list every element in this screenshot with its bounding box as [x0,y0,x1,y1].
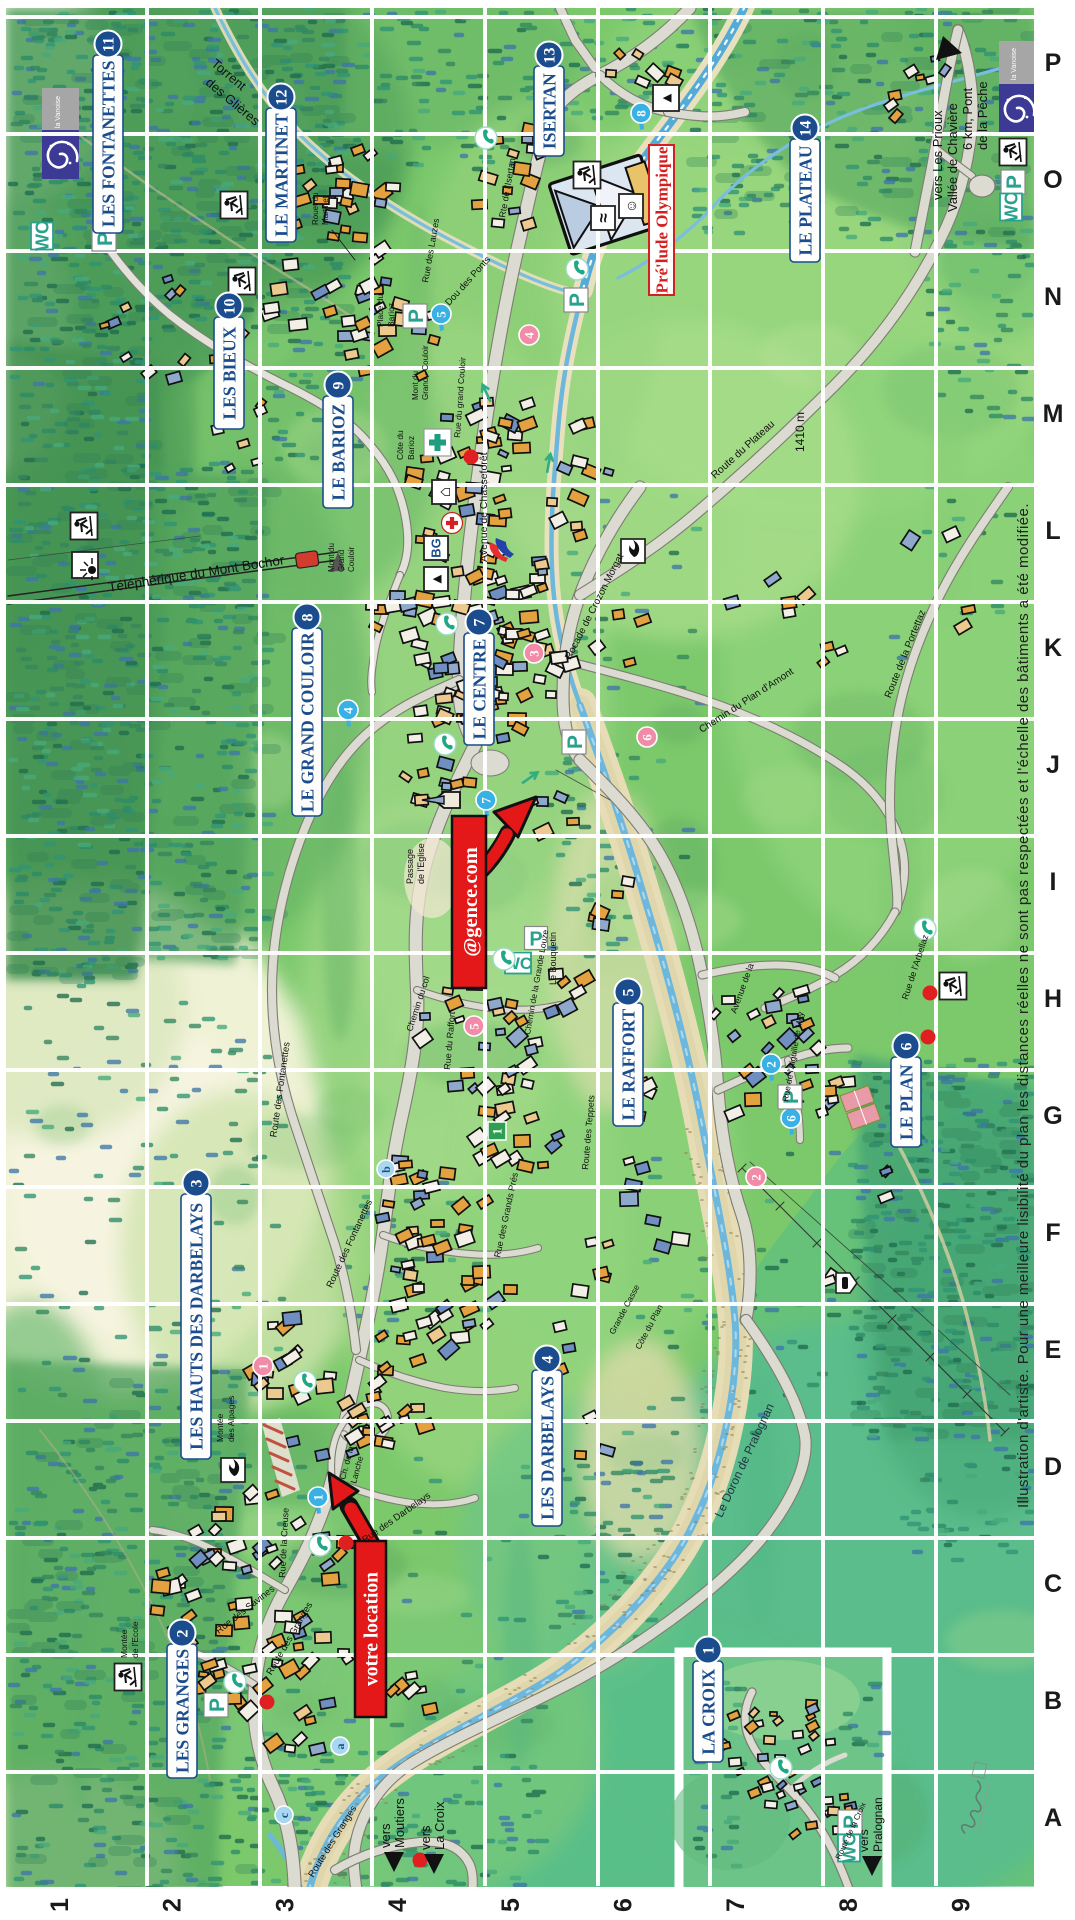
svg-text:P: P [405,309,428,323]
svg-text:7: 7 [472,619,489,627]
svg-text:Barioz: Barioz [406,436,416,460]
svg-text:3: 3 [271,1898,299,1912]
svg-text:C: C [1044,1570,1062,1598]
svg-text:LES BIEUX: LES BIEUX [219,326,239,419]
svg-text:LE PLATEAU: LE PLATEAU [795,145,815,255]
svg-text:LE GRAND COULOIR: LE GRAND COULOIR [297,632,317,812]
svg-text:1410 m: 1410 m [793,412,807,452]
svg-text:L: L [1045,517,1060,545]
svg-text:LE RAFFORT: LE RAFFORT [618,1008,638,1120]
svg-text:vers: vers [418,1825,433,1850]
svg-text:2: 2 [749,1174,764,1181]
svg-text:O: O [1043,166,1062,194]
svg-text:P: P [1045,49,1062,77]
svg-text:N: N [1044,283,1062,311]
svg-text:8: 8 [835,1898,863,1912]
svg-text:5: 5 [621,989,638,997]
svg-text:Mont du: Mont du [327,543,336,572]
svg-text:5: 5 [467,1023,482,1030]
svg-text:Pralognan: Pralognan [871,1797,885,1852]
svg-text:▲: ▲ [428,572,445,587]
svg-text:ISERTAN: ISERTAN [539,73,559,149]
svg-text:5: 5 [434,311,449,318]
svg-text:vers Les Prioux: vers Les Prioux [930,110,945,200]
svg-text:5: 5 [497,1898,525,1912]
svg-text:4: 4 [522,332,537,339]
svg-text:Le Bouquetin: Le Bouquetin [548,932,558,985]
svg-text:▲: ▲ [658,91,675,106]
svg-text:LA CROIX: LA CROIX [698,1668,718,1754]
svg-text:Mont du: Mont du [411,371,420,400]
svg-text:11: 11 [101,37,118,52]
svg-text:9: 9 [331,382,348,390]
svg-text:la Vanoise: la Vanoise [1011,48,1018,80]
svg-text:vers: vers [378,1823,393,1848]
svg-text:1: 1 [490,1128,505,1135]
svg-text:LES HAUTS DES DARBELAYS: LES HAUTS DES DARBELAYS [186,1203,206,1450]
svg-text:Vallée de Chavière: Vallée de Chavière [945,103,960,212]
svg-text:2: 2 [175,1630,192,1638]
svg-text:3: 3 [189,1180,206,1188]
svg-text:1: 1 [46,1898,74,1912]
svg-text:Grand - Couloir: Grand - Couloir [421,345,430,400]
svg-text:a: a [333,1744,347,1750]
svg-text:LE PLAN: LE PLAN [896,1064,916,1140]
svg-text:vers: vers [857,1829,871,1852]
svg-text:4: 4 [384,1898,412,1912]
svg-text:14: 14 [798,121,815,137]
svg-text:8: 8 [300,614,317,622]
svg-text:2: 2 [159,1898,187,1912]
svg-text:6: 6 [640,734,655,741]
svg-text:1: 1 [701,1647,718,1655]
svg-text:votre location: votre location [361,1572,382,1686]
svg-text:c: c [277,1812,291,1818]
svg-text:Passage: Passage [405,849,415,884]
svg-text:M: M [1043,400,1064,428]
svg-text:A: A [1044,1804,1062,1832]
svg-text:10: 10 [222,299,239,315]
svg-text:LES FONTANETTES: LES FONTANETTES [98,61,118,227]
svg-text:LE CENTRE: LE CENTRE [469,639,489,740]
svg-text:J: J [1046,751,1060,779]
svg-text:Rouet du: Rouet du [311,193,320,225]
svg-text:G: G [1043,1102,1062,1130]
svg-text:WC: WC [32,221,52,251]
svg-text:I: I [1050,868,1057,896]
svg-text:@gence.com: @gence.com [460,847,482,957]
svg-text:D: D [1044,1453,1062,1481]
svg-text:7: 7 [479,797,494,804]
svg-text:6: 6 [899,1043,916,1051]
svg-text:9: 9 [948,1898,976,1912]
svg-text:Moutiers: Moutiers [392,1798,407,1848]
svg-text:P: P [564,735,587,749]
svg-text:LE BARIOZ: LE BARIOZ [328,404,348,501]
svg-text:B: B [1044,1687,1062,1715]
svg-text:Couloir: Couloir [347,546,356,572]
svg-text:6: 6 [610,1898,638,1912]
svg-text:≈: ≈ [594,213,613,222]
svg-text:4: 4 [540,1356,557,1364]
svg-text:1: 1 [256,1363,271,1370]
svg-text:WC: WC [1001,192,1021,222]
svg-text:Barioz: Barioz [386,303,396,327]
svg-text:P: P [566,293,589,307]
svg-text:☺: ☺ [623,199,639,213]
svg-text:12: 12 [274,90,291,106]
svg-text:la Vanoise: la Vanoise [55,96,62,128]
svg-text:Montée: Montée [215,1413,225,1442]
svg-text:13: 13 [542,48,559,64]
svg-text:Montée: Montée [119,1629,129,1658]
svg-text:Grand: Grand [337,550,346,572]
svg-text:H: H [1044,985,1062,1013]
svg-text:P: P [94,232,117,246]
svg-text:6: 6 [784,1115,799,1122]
svg-text:P: P [1003,175,1026,189]
svg-text:Côte du: Côte du [395,430,405,460]
svg-text:F: F [1045,1219,1060,1247]
svg-text:Pré'lude Olympique: Pré'lude Olympique [653,146,672,293]
svg-text:La Croix: La Croix [432,1801,447,1850]
svg-text:4: 4 [341,707,356,714]
svg-text:de la Pêche: de la Pêche [975,81,990,150]
svg-text:BG: BG [429,538,444,558]
svg-text:Place du: Place du [375,294,385,327]
svg-text:LES DARBELAYS: LES DARBELAYS [537,1376,557,1520]
svg-text:6 km, Pont: 6 km, Pont [960,87,975,150]
svg-text:LE MARTINET: LE MARTINET [271,113,291,237]
svg-text:2: 2 [764,1061,779,1068]
svg-text:Illustration d'artiste. Pour u: Illustration d'artiste. Pour une meilleu… [1015,503,1032,1508]
svg-text:7: 7 [722,1898,750,1912]
svg-text:de l'Eglise: de l'Eglise [416,843,426,884]
svg-text:1: 1 [311,1494,326,1501]
svg-text:Avenue de Chasseforêt: Avenue de Chasseforêt [478,452,490,562]
svg-text:des Alpages: des Alpages [226,1396,236,1442]
svg-text:K: K [1044,634,1062,662]
svg-text:8: 8 [634,110,649,117]
svg-text:Martinet: Martinet [321,195,330,225]
svg-text:b: b [379,1166,393,1173]
svg-text:de l'Ecole: de l'Ecole [130,1621,140,1658]
svg-text:E: E [1045,1336,1062,1364]
svg-text:P: P [206,1698,229,1712]
svg-text:LES GRANGES: LES GRANGES [172,1649,192,1773]
svg-text:⌂: ⌂ [435,487,454,497]
svg-text:3: 3 [527,650,542,657]
